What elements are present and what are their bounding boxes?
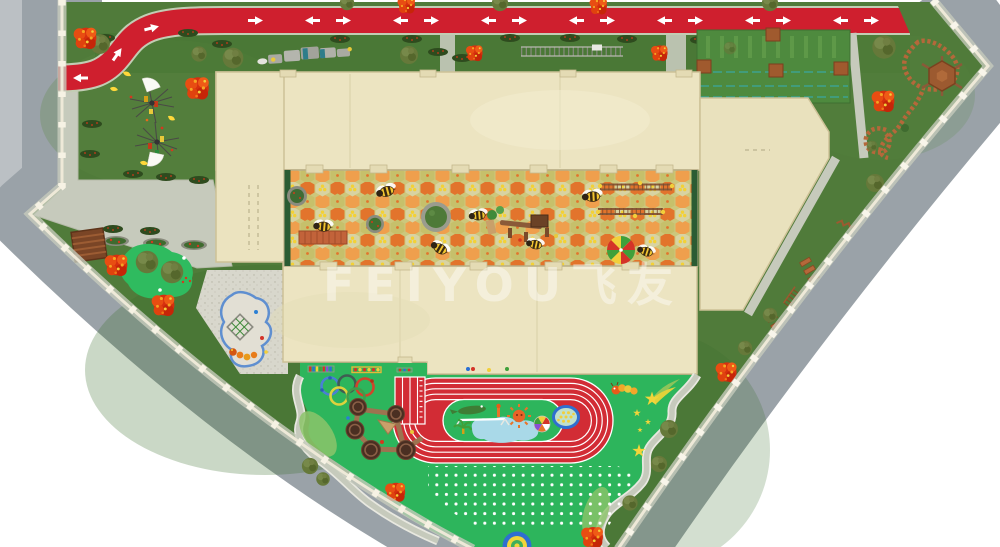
bench-row (299, 231, 347, 244)
site-plan-rendering: FEIYOU飞友 (0, 0, 1000, 547)
playground-site-plan: FEIYOU飞友 (0, 0, 1000, 547)
building-left-wing (216, 72, 284, 262)
swing-beam (460, 419, 505, 420)
flower-wheel (554, 407, 579, 428)
beach-ball (534, 416, 550, 432)
watermark-text: FEIYOU飞友 (323, 258, 683, 312)
